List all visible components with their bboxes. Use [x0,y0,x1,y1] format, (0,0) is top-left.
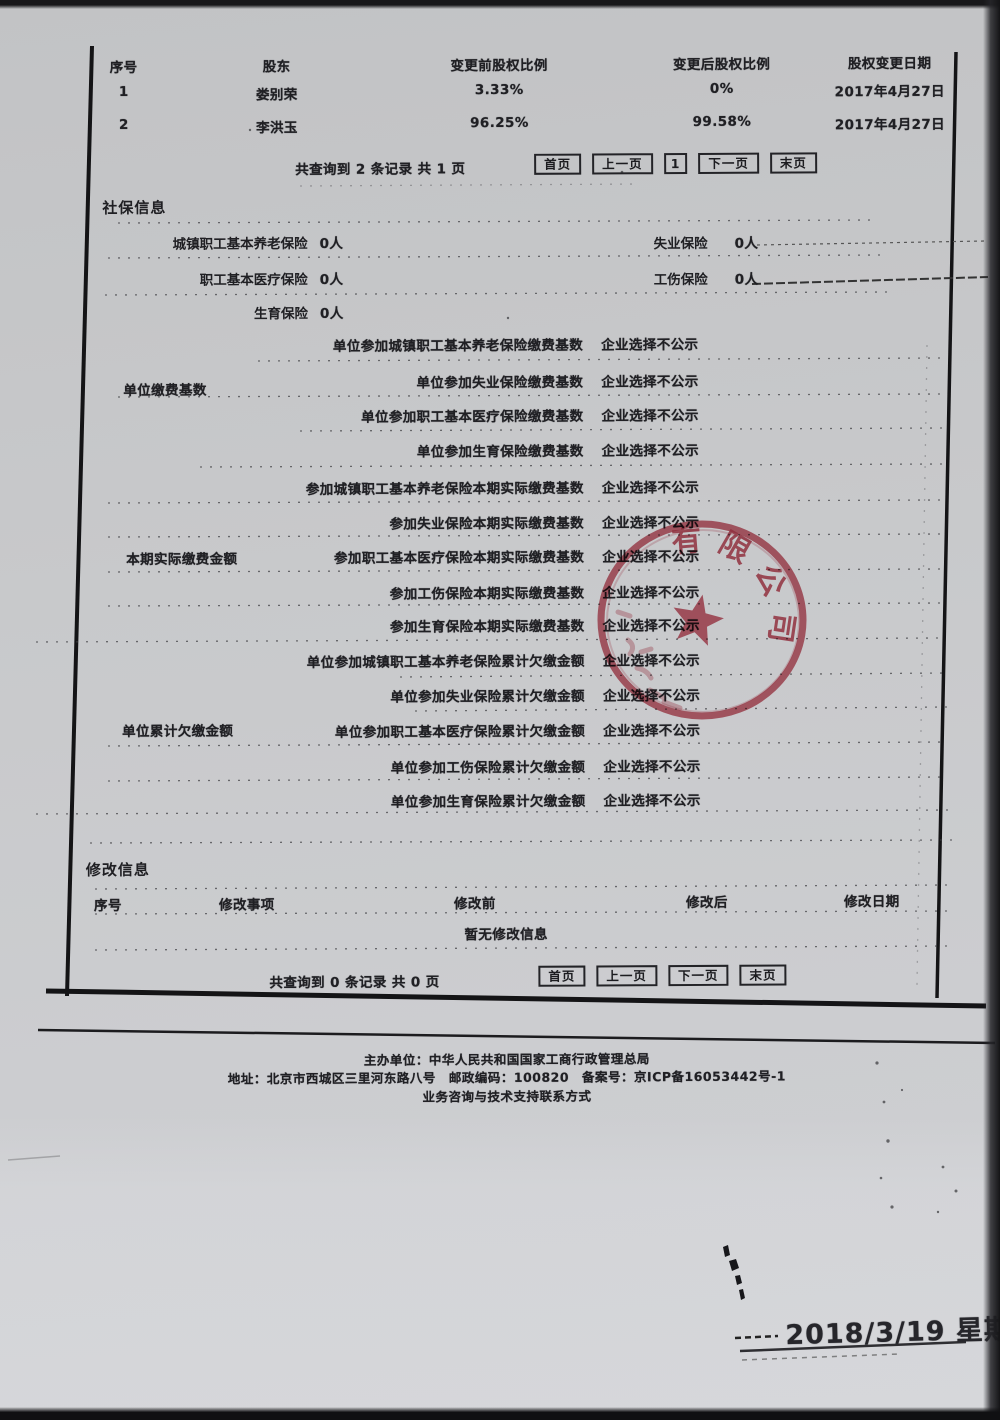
cell-after: 0% [637,80,807,97]
field-value: 0人 [734,232,758,252]
cell-before: 3.33% [387,81,612,98]
scan-edge-right [983,0,1000,1420]
group-row-label: 参加职工基本医疗保险本期实际缴费基数 [169,546,584,568]
cell-date: 2017年4月27日 [810,80,970,101]
field-label: 生育保险 [98,302,308,323]
group-row-value: 企业选择不公示 [603,684,700,705]
group-row: 参加城镇职工基本养老保险本期实际缴费基数 企业选择不公示 [0,474,999,499]
cell-date: 2017年4月27日 [810,113,970,134]
shareholder-table-header: 序号 股东 变更前股权比例 变更后股权比例 股权变更日期 [0,51,997,76]
col-header-no: 序号 [89,56,159,76]
group-row-label: 单位参加生育保险缴费基数 [169,440,584,462]
group-row-value: 企业选择不公示 [603,755,700,776]
group-row: 单位参加失业保险缴费基数 企业选择不公示 [0,368,998,393]
cell-name: 娄别荣 [187,83,367,104]
group-row-label: 单位参加工伤保险累计欠缴金额 [170,756,585,778]
col-header-before: 修改前 [454,892,496,912]
group-row-value: 企业选择不公示 [601,404,698,425]
group-row-value: 企业选择不公示 [602,476,699,497]
field-value: 0人 [320,302,344,322]
field-label: 工伤保险 [596,268,708,289]
group-row-label: 参加工伤保险本期实际缴费基数 [169,582,584,604]
table-row: 2 李洪玉 96.25% 99.58% 2017年4月27日 [0,112,997,137]
pagination-next-button[interactable]: 下一页 [698,153,759,174]
pagination-summary: 共查询到 0 条记录 共 0 页 [269,970,439,991]
modification-table-header: 序号 修改事项 修改前 修改后 修改日期 [1,889,1000,914]
pagination-next-button[interactable]: 下一页 [668,965,729,986]
group-row-label: 单位参加城镇职工基本养老保险累计欠缴金额 [170,650,585,672]
pagination-prev-button[interactable]: 上一页 [596,965,657,986]
group-row: 单位参加生育保险缴费基数 企业选择不公示 [0,437,999,462]
field-value: 0人 [735,268,759,288]
group-row-value: 企业选择不公示 [602,581,699,602]
section-title-social-insurance: 社保信息 [102,197,166,218]
footer-support: 业务咨询与技术支持联系方式 [2,1083,1000,1107]
group-row-value: 企业选择不公示 [602,439,699,460]
group-row: 单位参加工伤保险累计欠缴金额 企业选择不公示 [0,753,1000,778]
group-row-label: 参加失业保险本期实际缴费基数 [169,512,584,534]
document-content: 序号 股东 变更前股权比例 变更后股权比例 股权变更日期 1 娄别荣 3.33%… [0,0,1000,1420]
col-header-shareholder: 股东 [187,55,367,76]
scan-edge-top [0,0,1000,9]
scan-edge-bottom [0,1407,1000,1420]
group-row-value: 企业选择不公示 [601,333,698,354]
col-header-after: 修改后 [686,891,728,911]
group-row-value: 企业选择不公示 [601,370,698,391]
col-header-no: 序号 [94,894,122,914]
group-row-value: 企业选择不公示 [603,649,700,670]
col-header-change-date: 股权变更日期 [810,52,970,73]
group-row: 单位参加职工基本医疗保险缴费基数 企业选择不公示 [0,402,999,427]
pagination-prev-button[interactable]: 上一页 [592,153,653,174]
empty-state-text: 暂无修改信息 [421,923,591,944]
pagination-summary: 共查询到 2 条记录 共 1 页 [295,157,465,178]
field-label: 职工基本医疗保险 [98,268,308,289]
group-row: 单位参加城镇职工基本养老保险缴费基数 企业选择不公示 [0,331,998,356]
col-header-item: 修改事项 [219,893,275,913]
col-header-ratio-before: 变更前股权比例 [387,53,612,74]
group-row-value: 企业选择不公示 [603,614,700,635]
pagination-first-button[interactable]: 首页 [534,154,581,175]
pagination-first-button[interactable]: 首页 [538,966,585,987]
col-header-date: 修改日期 [844,890,900,910]
group-row: 参加职工基本医疗保险本期实际缴费基数 企业选择不公示 [0,543,999,568]
group-row: 单位参加城镇职工基本养老保险累计欠缴金额 企业选择不公示 [0,647,1000,672]
cell-name: 李洪玉 [187,116,367,137]
field-label: 失业保险 [596,232,708,253]
group-row-label: 单位参加职工基本医疗保险缴费基数 [168,405,583,427]
cell-no: 2 [89,117,159,133]
group-row: 单位参加生育保险累计欠缴金额 企业选择不公示 [0,787,1000,812]
group-row-value: 企业选择不公示 [603,719,700,740]
field-value: 0人 [319,232,343,252]
group-row: 单位参加失业保险累计欠缴金额 企业选择不公示 [0,682,1000,707]
group-row-label: 单位参加失业保险缴费基数 [168,371,583,393]
table-row: 1 娄别荣 3.33% 0% 2017年4月27日 [0,79,997,104]
group-row-value: 企业选择不公示 [603,789,700,810]
group-row: 单位参加职工基本医疗保险累计欠缴金额 企业选择不公示 [0,717,1000,742]
pagination-controls: 首页 上一页 下一页 末页 [538,965,786,987]
section-title-modification: 修改信息 [86,859,150,880]
group-row-label: 单位参加职工基本医疗保险累计欠缴金额 [170,720,585,742]
group-row-label: 单位参加生育保险累计欠缴金额 [170,790,585,812]
field-label: 城镇职工基本养老保险 [97,232,307,253]
col-header-ratio-after: 变更后股权比例 [637,52,807,73]
cell-after: 99.58% [637,113,807,130]
group-row-label: 单位参加城镇职工基本养老保险缴费基数 [168,334,583,356]
group-row: 参加生育保险本期实际缴费基数 企业选择不公示 [0,612,1000,637]
print-date: 2018/3/19 星期一 [785,1307,1000,1353]
group-row-label: 参加生育保险本期实际缴费基数 [170,615,585,637]
group-row-value: 企业选择不公示 [602,511,699,532]
pagination-controls: 首页 上一页 1 下一页 末页 [534,152,817,174]
group-row-label: 参加城镇职工基本养老保险本期实际缴费基数 [169,477,584,499]
group-row-value: 企业选择不公示 [602,545,699,566]
pagination-last-button[interactable]: 末页 [770,152,817,173]
cell-no: 1 [89,84,159,100]
group-row-label: 单位参加失业保险累计欠缴金额 [170,685,585,707]
group-row: 参加工伤保险本期实际缴费基数 企业选择不公示 [0,579,999,604]
scanned-document-page: 序号 股东 变更前股权比例 变更后股权比例 股权变更日期 1 娄别荣 3.33%… [0,0,1000,1420]
cell-before: 96.25% [387,114,612,131]
pagination-last-button[interactable]: 末页 [739,965,786,986]
pagination-page-button[interactable]: 1 [664,153,688,174]
group-row: 参加失业保险本期实际缴费基数 企业选择不公示 [0,509,999,534]
field-value: 0人 [320,268,344,288]
